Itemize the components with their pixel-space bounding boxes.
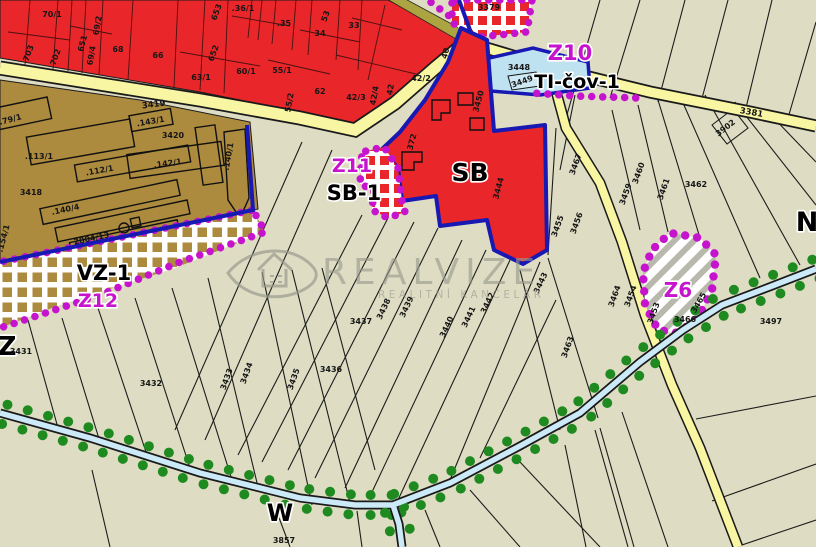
zone-black-label: N	[796, 207, 816, 238]
parcel-label: 3432	[140, 379, 162, 388]
parcel-label: 3431	[10, 347, 33, 356]
watermark-brand: REALVIZE	[322, 252, 541, 293]
parcel-label: 3466	[674, 315, 697, 324]
zone-magenta-label: Z12	[78, 290, 118, 312]
zone-magenta-label: Z11	[332, 155, 372, 177]
parcel-label: 63/1	[191, 73, 211, 82]
parcel-label: 3497	[760, 317, 782, 326]
parcel-label: 3437	[350, 317, 372, 326]
parcel-label: 70/1	[42, 10, 62, 19]
parcel-label: 68	[112, 45, 124, 54]
parcel-label: 3418	[20, 188, 43, 197]
zone-magenta-label: Z10	[548, 41, 592, 65]
parcel-label: 62	[314, 87, 325, 96]
parcel-label: .36/1	[232, 4, 255, 13]
parcel-label: .113/1	[25, 152, 54, 161]
parcel-label: 42/2	[411, 74, 431, 83]
parcel-label: 33	[348, 21, 359, 30]
parcel-label: 60/1	[236, 67, 256, 76]
parcel-label: 34	[314, 29, 326, 38]
parcel-label: 42	[385, 83, 396, 96]
parcel-label: 3448	[508, 63, 531, 72]
zone-black-label: SB	[451, 158, 488, 187]
parcel-label: 3857	[273, 536, 295, 545]
parcel-label: 3436	[320, 365, 343, 374]
parcel-label: 42/3	[346, 93, 366, 102]
parcel-label: 3379	[478, 3, 501, 12]
zone-black-label: W	[267, 499, 293, 527]
parcel-label: 66	[152, 51, 164, 60]
map-canvas: Z10TI-čov-1Z11SB-1SBVZ-1Z12Z6ZWN34193381…	[0, 0, 816, 547]
parcel-label: 3462	[685, 180, 707, 189]
parcel-label: .35	[277, 19, 292, 28]
zone-black-label: TI-čov-1	[534, 71, 620, 93]
parcel-label: 55/1	[272, 66, 292, 75]
zone-magenta-label: Z6	[664, 278, 692, 302]
watermark-subtitle: REALITNÍ KANCELÁŘ	[378, 288, 545, 301]
parcel-label: 3420	[162, 131, 185, 140]
zone-black-label: VZ-1	[77, 261, 131, 285]
cadastral-map[interactable]: Z10TI-čov-1Z11SB-1SBVZ-1Z12Z6ZWN34193381…	[0, 0, 816, 547]
zone-black-label: SB-1	[327, 181, 381, 205]
